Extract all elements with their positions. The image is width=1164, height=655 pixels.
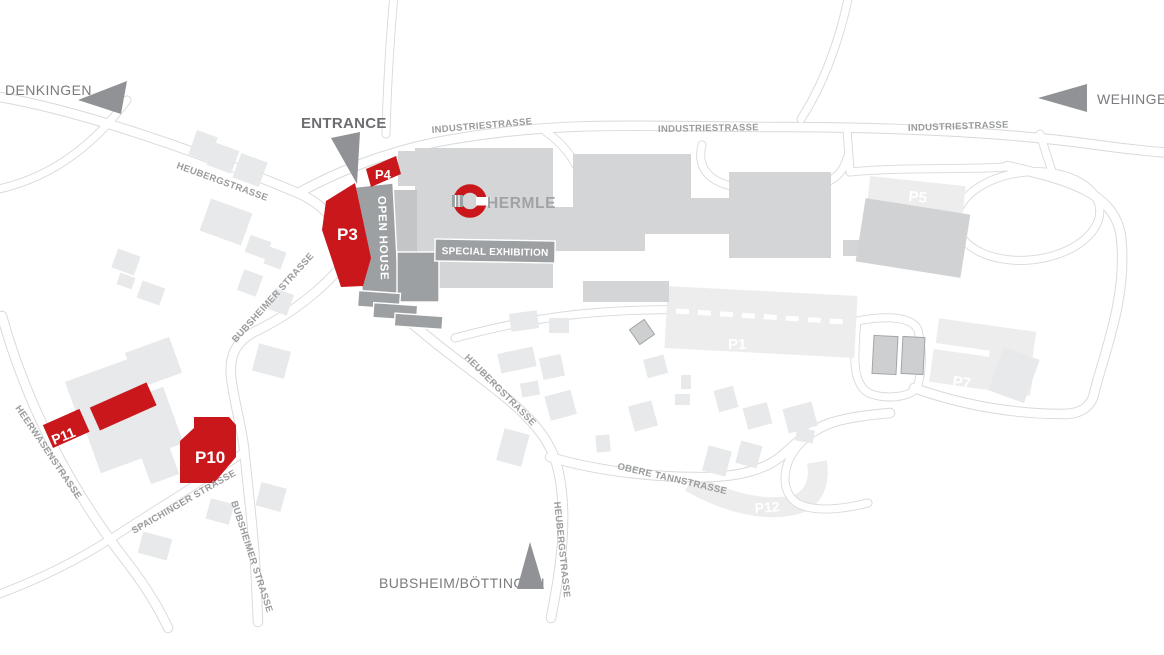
hermle-logo-wordmark: HERMLE	[487, 195, 556, 212]
parking-label-p3: P3	[337, 225, 358, 244]
parking-label-p7: P7	[951, 373, 972, 392]
special-exhibition-label: SPECIAL EXHIBITION	[442, 246, 549, 259]
entrance-label: ENTRANCE	[301, 115, 387, 132]
hermle-logo-spindle-icon	[452, 195, 463, 207]
building	[675, 394, 690, 405]
parking-area-p1	[665, 286, 858, 358]
parking-label-p5: P5	[908, 188, 928, 207]
building	[729, 172, 831, 258]
destination-label-wehingen: WEHINGEN	[1097, 91, 1164, 107]
building	[901, 336, 925, 374]
street-label-industriestrasse: INDUSTRIESTRASSE	[658, 122, 759, 135]
parking-label-p10: P10	[195, 448, 225, 467]
building	[583, 281, 669, 302]
parking-label-p12: P12	[754, 498, 780, 516]
building	[398, 151, 417, 186]
site-map: HERMLE INDUSTRIESTRASSE INDUSTRIESTRASSE…	[0, 0, 1164, 655]
destination-label-denkingen: DENKINGEN	[5, 82, 92, 98]
building	[872, 335, 898, 374]
building	[681, 375, 691, 389]
parking-label-p1: P1	[728, 336, 746, 353]
parking-label-p4: P4	[375, 167, 392, 182]
building	[539, 354, 565, 380]
building	[553, 207, 645, 251]
building	[549, 318, 569, 333]
building	[595, 434, 610, 452]
building	[640, 198, 740, 234]
building	[397, 252, 439, 302]
map-canvas: HERMLE INDUSTRIESTRASSE INDUSTRIESTRASSE…	[0, 0, 1164, 655]
building	[394, 313, 443, 329]
